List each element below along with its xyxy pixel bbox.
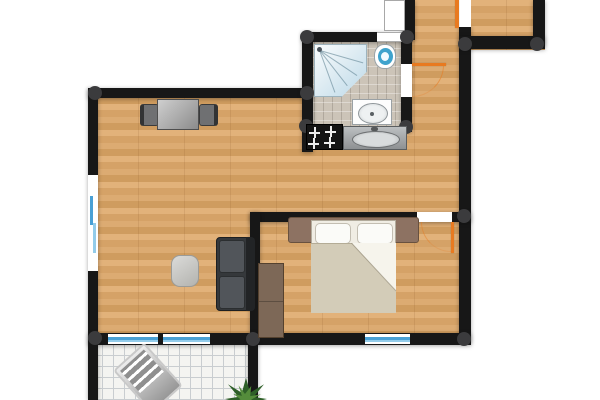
toilet-lid <box>381 52 389 61</box>
corner-joint <box>457 332 471 346</box>
corner-joint <box>300 86 314 100</box>
burner-icon <box>324 137 335 148</box>
bathroom-sink-drain <box>370 112 374 116</box>
corner-joint <box>300 30 314 44</box>
bedroom-door-opening <box>417 212 452 222</box>
corner-joint <box>457 209 471 223</box>
corner-joint <box>88 331 102 345</box>
corner-joint <box>400 30 414 44</box>
sofa-cushion <box>219 276 245 309</box>
living-room-top-wall <box>88 88 313 98</box>
balcony-left-wall <box>88 340 98 400</box>
balcony-window-1[interactable] <box>108 334 158 344</box>
burner-icon <box>309 127 320 138</box>
desk-table[interactable] <box>157 99 199 130</box>
bathroom-door-opening <box>401 64 412 97</box>
kitchen-sink-basin <box>352 131 400 148</box>
wardrobe[interactable] <box>258 263 284 338</box>
right-wall <box>459 26 471 342</box>
burner-icon <box>308 138 319 149</box>
floor-plan-canvas <box>0 0 600 400</box>
living-room-left-window[interactable] <box>88 175 98 271</box>
corner-joint <box>88 86 102 100</box>
balcony-window-2[interactable] <box>163 334 210 344</box>
bedroom-window[interactable] <box>365 334 410 344</box>
bathroom-window-casement <box>384 0 405 31</box>
entrance-door[interactable] <box>455 0 459 28</box>
side-table[interactable] <box>171 255 199 287</box>
burner-icon <box>325 126 336 137</box>
corner-joint <box>530 37 544 51</box>
corner-joint <box>458 37 472 51</box>
bedroom-door[interactable] <box>451 222 454 253</box>
sofa-backrest <box>246 237 255 311</box>
desk-chair-right[interactable] <box>199 104 218 126</box>
pillow <box>315 223 351 244</box>
shower-head-icon <box>317 47 322 52</box>
sofa-cushion <box>219 240 245 273</box>
kitchen-faucet-icon <box>371 127 378 131</box>
pillow <box>357 223 393 244</box>
entrance-door-opening <box>459 0 471 27</box>
